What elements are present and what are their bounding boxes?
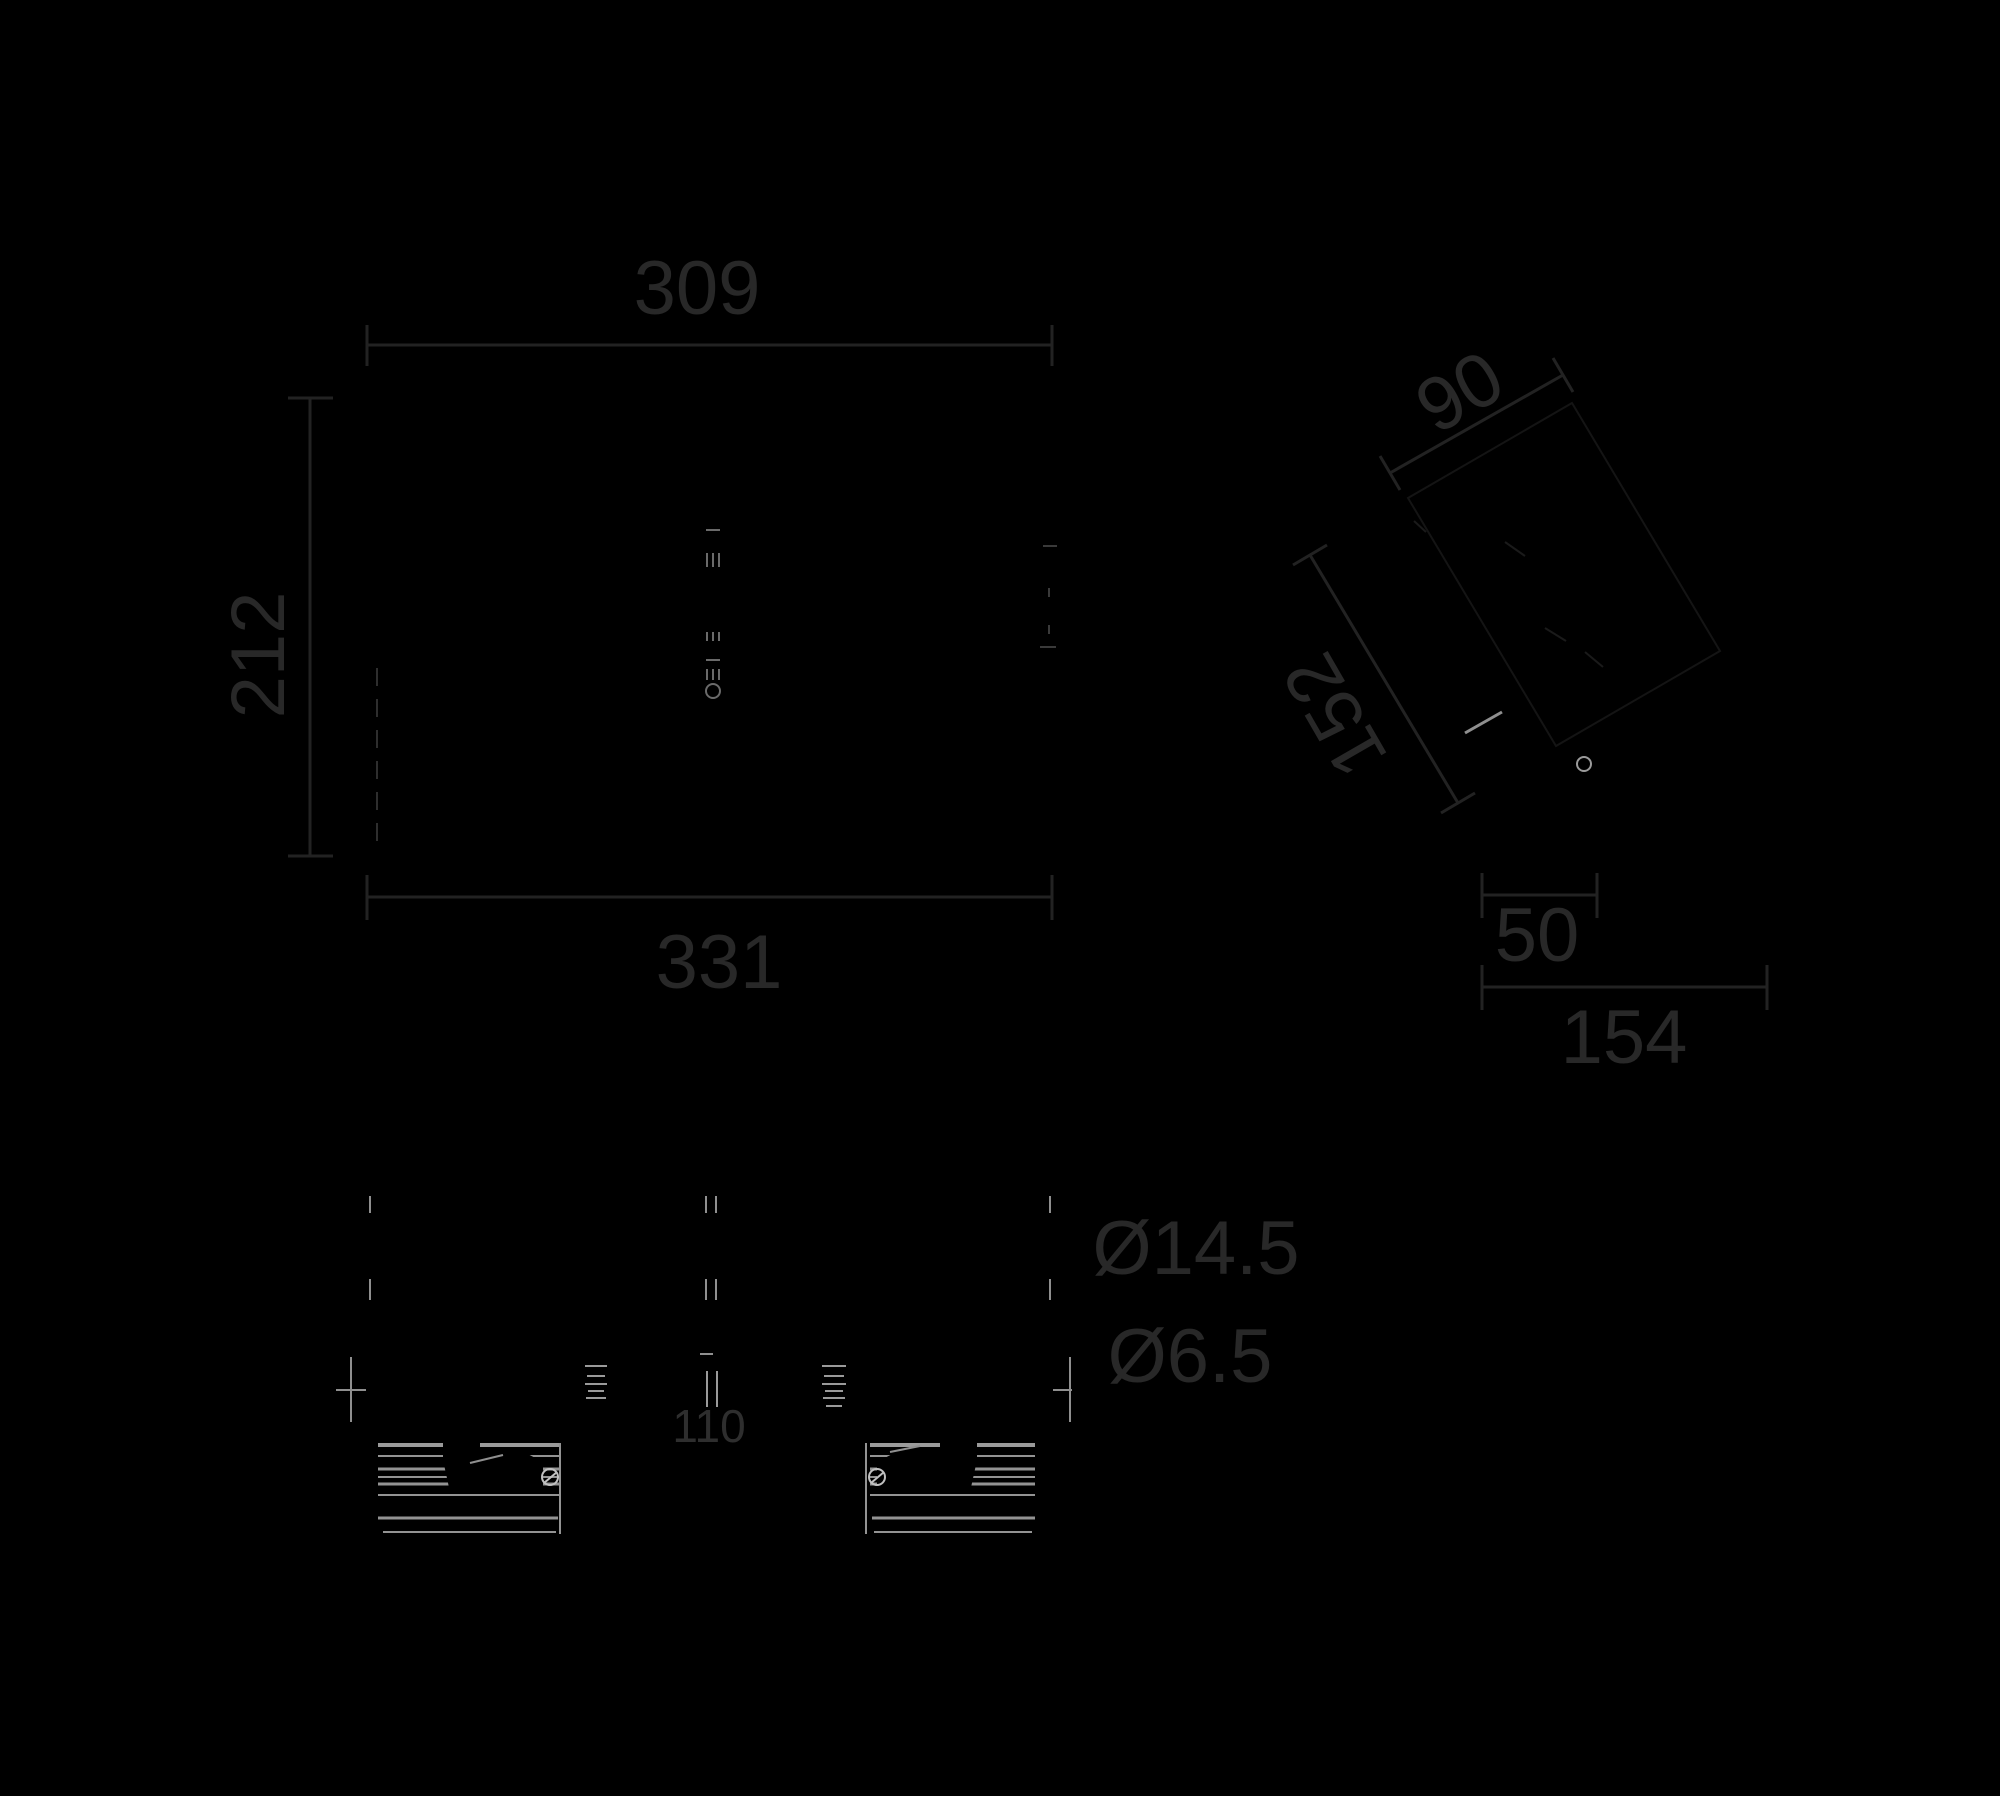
dimension-line: [1441, 793, 1475, 813]
detail-line: [1585, 652, 1603, 667]
technical-dimension-drawing: 3092123319015250154Ø14.5Ø6.5110: [0, 0, 2000, 1796]
drawing-canvas: 3092123319015250154Ø14.5Ø6.5110: [0, 0, 2000, 1796]
section-silhouette: [877, 1441, 977, 1492]
side-view-outline: [1408, 403, 1720, 746]
dim-front-height-label: 212: [216, 592, 301, 719]
hole-diameter-small-label: Ø6.5: [1108, 1314, 1273, 1399]
dim-side-height-label: 152: [1267, 639, 1404, 791]
dim-side-total-depth-label: 154: [1561, 995, 1688, 1080]
detail-line: [1465, 712, 1502, 733]
dim-side-depth-label: 90: [1402, 334, 1518, 450]
dim-front-top-width-label: 309: [634, 246, 761, 331]
detail-line: [1505, 542, 1525, 556]
section-silhouette: [443, 1441, 543, 1492]
screw-hole-icon: [706, 684, 720, 698]
dimension-line: [1380, 456, 1400, 490]
hole-diameter-large-label: Ø14.5: [1092, 1206, 1299, 1291]
dimension-line: [1553, 358, 1573, 392]
dimension-line: [1293, 545, 1327, 565]
dim-side-offset-label: 50: [1495, 893, 1580, 978]
dim-front-bottom-width-label: 331: [656, 920, 783, 1005]
detail-line: [1545, 628, 1566, 641]
screw-hole-icon: [1577, 757, 1591, 771]
dim-hole-spacing-label: 110: [672, 1400, 745, 1452]
